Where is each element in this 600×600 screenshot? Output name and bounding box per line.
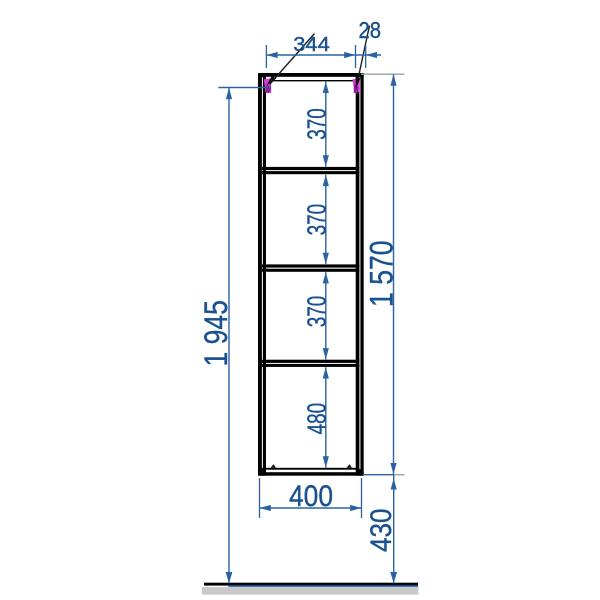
svg-text:430: 430 xyxy=(365,509,398,553)
svg-text:1 945: 1 945 xyxy=(198,300,234,367)
svg-text:344: 344 xyxy=(293,33,330,56)
svg-text:480: 480 xyxy=(304,403,332,435)
svg-text:370: 370 xyxy=(304,108,332,140)
svg-text:370: 370 xyxy=(304,204,332,236)
svg-text:1 570: 1 570 xyxy=(364,240,400,307)
svg-text:370: 370 xyxy=(304,296,332,328)
svg-text:28: 28 xyxy=(359,17,382,43)
svg-text:400: 400 xyxy=(289,480,333,513)
